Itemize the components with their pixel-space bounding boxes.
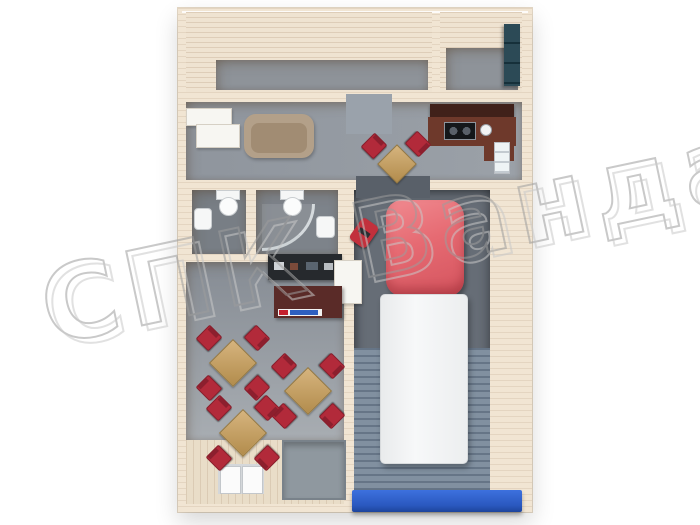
red-chair (196, 325, 223, 352)
maroon-bar-counter (274, 286, 342, 318)
red-floor-jack (348, 217, 379, 250)
red-chair (254, 395, 281, 422)
shelf-item (324, 263, 333, 270)
sofa-seat (251, 123, 307, 153)
teal-shelf-unit (504, 24, 520, 86)
room-storage (186, 12, 432, 92)
table-4-chairs (200, 390, 284, 474)
wall-window (494, 142, 510, 174)
red-chair (271, 353, 298, 380)
table-2-chairs (363, 132, 429, 184)
wood-table (209, 339, 257, 387)
red-chair (206, 445, 233, 472)
gray-floor-mat (282, 440, 346, 500)
logo-red-block (279, 310, 288, 315)
blue-garage-door (352, 490, 522, 512)
red-chair (405, 131, 432, 158)
wash-sink (316, 216, 335, 238)
corner-shower (262, 204, 315, 251)
shelf-item (274, 262, 284, 270)
shelf-item (306, 262, 318, 270)
floor-plan-render: СПК Ванда СПК Ванда (0, 0, 700, 525)
wood-table (284, 367, 332, 415)
dark-tool-shelf (268, 254, 342, 280)
room-bathroom-right (256, 190, 338, 254)
kitchen-hood (430, 104, 514, 117)
toilet (219, 197, 238, 216)
truck-box-body (380, 294, 468, 464)
two-burner-stove (444, 122, 476, 140)
wash-sink (194, 208, 212, 230)
room-garage-bay (354, 190, 490, 500)
red-chair (254, 445, 281, 472)
storage-floor (216, 60, 428, 90)
building-footprint (178, 8, 532, 512)
shelf-item (290, 263, 298, 270)
truck-cab (386, 200, 464, 296)
red-chair (319, 353, 346, 380)
beige-sofa (244, 114, 314, 158)
red-chair (319, 403, 346, 430)
round-sink (480, 124, 492, 136)
wood-table (219, 409, 267, 457)
white-wardrobe (196, 124, 240, 148)
room-bathroom-left (192, 190, 246, 254)
room-utility (440, 12, 522, 92)
bar-logo (278, 309, 322, 316)
red-chair (206, 395, 233, 422)
red-chair (361, 133, 388, 160)
logo-blue-block (290, 310, 318, 315)
doorway-storage (346, 94, 392, 134)
